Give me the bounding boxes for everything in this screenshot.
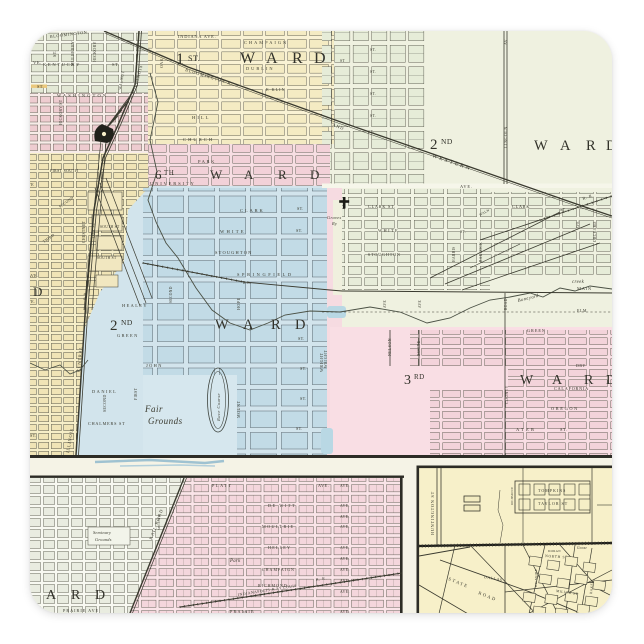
svg-text:RD: RD — [414, 373, 425, 381]
svg-text:ST.: ST. — [560, 207, 566, 212]
svg-text:Graves: Graves — [327, 215, 341, 220]
svg-text:AVE.: AVE. — [318, 483, 329, 488]
svg-text:ST.: ST. — [460, 229, 466, 234]
svg-text:CHESTNUT: CHESTNUT — [82, 220, 86, 243]
svg-text:HILL: HILL — [192, 115, 210, 120]
svg-text:ST.: ST. — [300, 396, 307, 401]
svg-text:HEALEY: HEALEY — [122, 303, 148, 308]
svg-text:RICHMOND: RICHMOND — [258, 583, 288, 588]
svg-text:COUNTY: COUNTY — [505, 385, 509, 404]
svg-text:Park: Park — [229, 559, 241, 564]
svg-text:LINCOLN: LINCOLN — [503, 126, 508, 148]
svg-text:TOMPKINS: TOMPKINS — [538, 488, 566, 493]
svg-text:GREEN: GREEN — [117, 333, 139, 338]
svg-text:AVE: AVE — [383, 299, 387, 308]
svg-text:BABCOCK: BABCOCK — [479, 242, 483, 262]
svg-text:ND: ND — [441, 137, 453, 146]
svg-text:Ry: Ry — [331, 221, 337, 226]
svg-text:SECOND: SECOND — [157, 514, 161, 530]
svg-text:MULBERRY: MULBERRY — [70, 41, 75, 66]
svg-text:PRAIRIE AVE: PRAIRIE AVE — [63, 608, 99, 613]
svg-text:ATER: ATER — [516, 427, 536, 432]
svg-text:A: A — [243, 317, 254, 333]
svg-text:HARRIS: HARRIS — [452, 246, 456, 262]
svg-text:WHITE: WHITE — [220, 229, 246, 234]
svg-text:AVE.: AVE. — [340, 557, 350, 561]
svg-text:AVE.: AVE. — [340, 504, 350, 508]
svg-text:PARK: PARK — [198, 159, 216, 164]
svg-text:ST.: ST. — [300, 366, 307, 371]
svg-text:W: W — [210, 167, 223, 182]
svg-text:AVE.: AVE. — [460, 184, 473, 189]
svg-text:WHITE: WHITE — [378, 228, 399, 233]
svg-text:HICKORY ST: HICKORY ST — [59, 99, 63, 125]
svg-text:D: D — [295, 317, 305, 333]
svg-text:Race Course: Race Course — [216, 393, 221, 422]
svg-text:R: R — [271, 317, 281, 333]
svg-text:JOHN: JOHN — [146, 363, 163, 368]
svg-text:AVE.: AVE. — [340, 484, 350, 488]
svg-text:FIRST: FIRST — [134, 387, 138, 400]
svg-text:ST: ST — [340, 59, 345, 63]
svg-text:ST.: ST. — [370, 47, 376, 52]
svg-text:ST.: ST. — [112, 62, 120, 67]
svg-text:DRY: DRY — [576, 363, 586, 368]
svg-text:NELSON: NELSON — [388, 338, 392, 356]
svg-text:ST.: ST. — [560, 427, 567, 432]
svg-text:SOUTH ST: SOUTH ST — [97, 256, 117, 260]
svg-text:INDIANA AVE.: INDIANA AVE. — [178, 34, 217, 39]
svg-text:R: R — [71, 588, 81, 603]
svg-text:ST.: ST. — [52, 50, 57, 57]
svg-text:Goose: Goose — [577, 546, 587, 550]
svg-text:HELSEY: HELSEY — [268, 545, 291, 550]
svg-text:PLATT: PLATT — [212, 483, 233, 488]
svg-text:WASHINGTON: WASHINGTON — [57, 93, 108, 98]
svg-text:3: 3 — [404, 373, 411, 388]
svg-text:D: D — [606, 138, 612, 154]
svg-text:D: D — [314, 50, 326, 67]
svg-text:STOUGHTON: STOUGHTON — [368, 252, 401, 257]
svg-text:GILMORE: GILMORE — [534, 569, 538, 587]
svg-text:AVE.: AVE. — [340, 568, 350, 572]
svg-text:D: D — [33, 284, 42, 299]
svg-text:AVE.: AVE. — [30, 299, 35, 304]
svg-text:TH: TH — [164, 169, 174, 177]
svg-text:SPRINGFIELD: SPRINGFIELD — [237, 272, 294, 277]
svg-text:ST.: ST. — [370, 69, 376, 74]
svg-text:ST.: ST. — [370, 113, 376, 118]
svg-text:BOONE: BOONE — [417, 340, 421, 356]
svg-text:ND: ND — [121, 318, 133, 327]
svg-text:R R: R R — [82, 292, 88, 300]
svg-text:D: D — [310, 167, 319, 182]
svg-text:A: A — [46, 588, 57, 603]
svg-text:AV: AV — [503, 39, 508, 45]
svg-text:MAIN: MAIN — [577, 286, 592, 291]
svg-text:DORAN: DORAN — [548, 549, 561, 553]
svg-text:HUNTINGTON ST: HUNTINGTON ST — [430, 491, 435, 535]
svg-text:ST.: ST. — [297, 206, 304, 211]
svg-text:ELM: ELM — [577, 308, 587, 313]
svg-text:SOUTH ST: SOUTH ST — [100, 225, 120, 229]
svg-text:W: W — [534, 138, 548, 154]
svg-text:CLARK: CLARK — [240, 208, 265, 213]
svg-text:A: A — [266, 50, 278, 67]
svg-text:Fair: Fair — [144, 404, 163, 414]
svg-text:creek: creek — [572, 280, 585, 285]
svg-text:ROAD: ROAD — [504, 298, 508, 310]
svg-text:W: W — [240, 50, 256, 67]
svg-text:D: D — [606, 373, 612, 388]
svg-text:ORCHARD: ORCHARD — [593, 222, 597, 242]
svg-text:DANIEL: DANIEL — [92, 389, 117, 394]
svg-text:AVE: AVE — [30, 182, 34, 187]
svg-text:ST.: ST. — [370, 91, 376, 96]
svg-text:W: W — [215, 317, 229, 333]
svg-text:STOUGHTON: STOUGHTON — [215, 250, 252, 255]
svg-text:CLARK ST.: CLARK ST. — [368, 204, 396, 209]
svg-text:AVE.: AVE. — [340, 515, 350, 519]
svg-text:ST.: ST. — [37, 84, 44, 89]
svg-text:ST.: ST. — [368, 129, 374, 134]
svg-text:CHAMPAIGN: CHAMPAIGN — [244, 40, 288, 45]
svg-text:CHAMPAIGN: CHAMPAIGN — [262, 567, 295, 572]
svg-text:TAYLOR ST: TAYLOR ST — [538, 501, 568, 506]
svg-text:AVE: AVE — [418, 299, 422, 308]
svg-text:AVE.: AVE. — [340, 590, 350, 594]
svg-text:OAK ST: OAK ST — [92, 222, 96, 238]
svg-text:CALAFORNIA: CALAFORNIA — [554, 386, 589, 391]
svg-text:ST.: ST. — [188, 54, 200, 63]
svg-text:AVE.: AVE. — [340, 546, 350, 550]
svg-text:Grounds: Grounds — [148, 416, 183, 426]
svg-text:MOUNT: MOUNT — [236, 400, 241, 418]
svg-text:D: D — [95, 588, 105, 603]
svg-text:ST.: ST. — [296, 426, 303, 431]
svg-text:OAK: OAK — [159, 58, 164, 68]
svg-text:E KLIN: E KLIN — [266, 87, 286, 92]
svg-text:R: R — [278, 167, 287, 182]
svg-text:AVE.: AVE. — [576, 220, 580, 229]
svg-text:A: A — [560, 138, 571, 154]
svg-text:AVE.: AVE. — [30, 273, 38, 278]
svg-text:DUBLIN: DUBLIN — [246, 66, 275, 71]
svg-text:VE.: VE. — [33, 60, 42, 65]
svg-text:1: 1 — [176, 51, 184, 68]
svg-text:SECOND: SECOND — [169, 286, 173, 303]
svg-text:6: 6 — [155, 167, 162, 182]
svg-text:PRAIRIE: PRAIRIE — [230, 609, 255, 613]
svg-text:CHURCH: CHURCH — [183, 137, 214, 142]
svg-text:ST.: ST. — [298, 336, 305, 341]
svg-text:AVE.: AVE. — [340, 579, 350, 583]
svg-text:WRIGHT: WRIGHT — [324, 350, 328, 368]
svg-text:DE WITT: DE WITT — [268, 503, 296, 508]
svg-text:A: A — [244, 167, 254, 182]
svg-text:CLARK: CLARK — [512, 204, 530, 209]
svg-text:2: 2 — [110, 318, 118, 334]
svg-text:MOULTRIE: MOULTRIE — [262, 524, 294, 529]
svg-text:UNIVERSITY: UNIVERSITY — [150, 181, 196, 186]
svg-text:W: W — [520, 373, 534, 388]
svg-text:2: 2 — [430, 137, 438, 153]
svg-text:CHALMERS ST: CHALMERS ST — [88, 421, 126, 426]
svg-text:HICKORY: HICKORY — [92, 41, 97, 62]
svg-text:Grounds: Grounds — [95, 537, 112, 542]
svg-text:AVE.: AVE. — [340, 610, 350, 613]
svg-text:SECOND: SECOND — [103, 394, 107, 412]
svg-text:ST.: ST. — [30, 433, 37, 438]
svg-text:GREEN: GREEN — [527, 328, 546, 333]
svg-text:FIRST SOUTH: FIRST SOUTH — [50, 169, 78, 173]
svg-text:AVE.: AVE. — [340, 525, 350, 529]
svg-text:OREGON: OREGON — [551, 406, 579, 411]
svg-text:ST.: ST. — [296, 228, 303, 233]
svg-text:R: R — [292, 50, 303, 67]
svg-text:RICHMOND: RICHMOND — [510, 486, 514, 505]
svg-text:HOPE: HOPE — [236, 297, 241, 310]
svg-text:Seminary: Seminary — [93, 530, 111, 535]
svg-text:R: R — [586, 138, 596, 154]
svg-text:KENTUCKY: KENTUCKY — [43, 62, 81, 67]
svg-text:R.R.: R.R. — [243, 281, 252, 285]
